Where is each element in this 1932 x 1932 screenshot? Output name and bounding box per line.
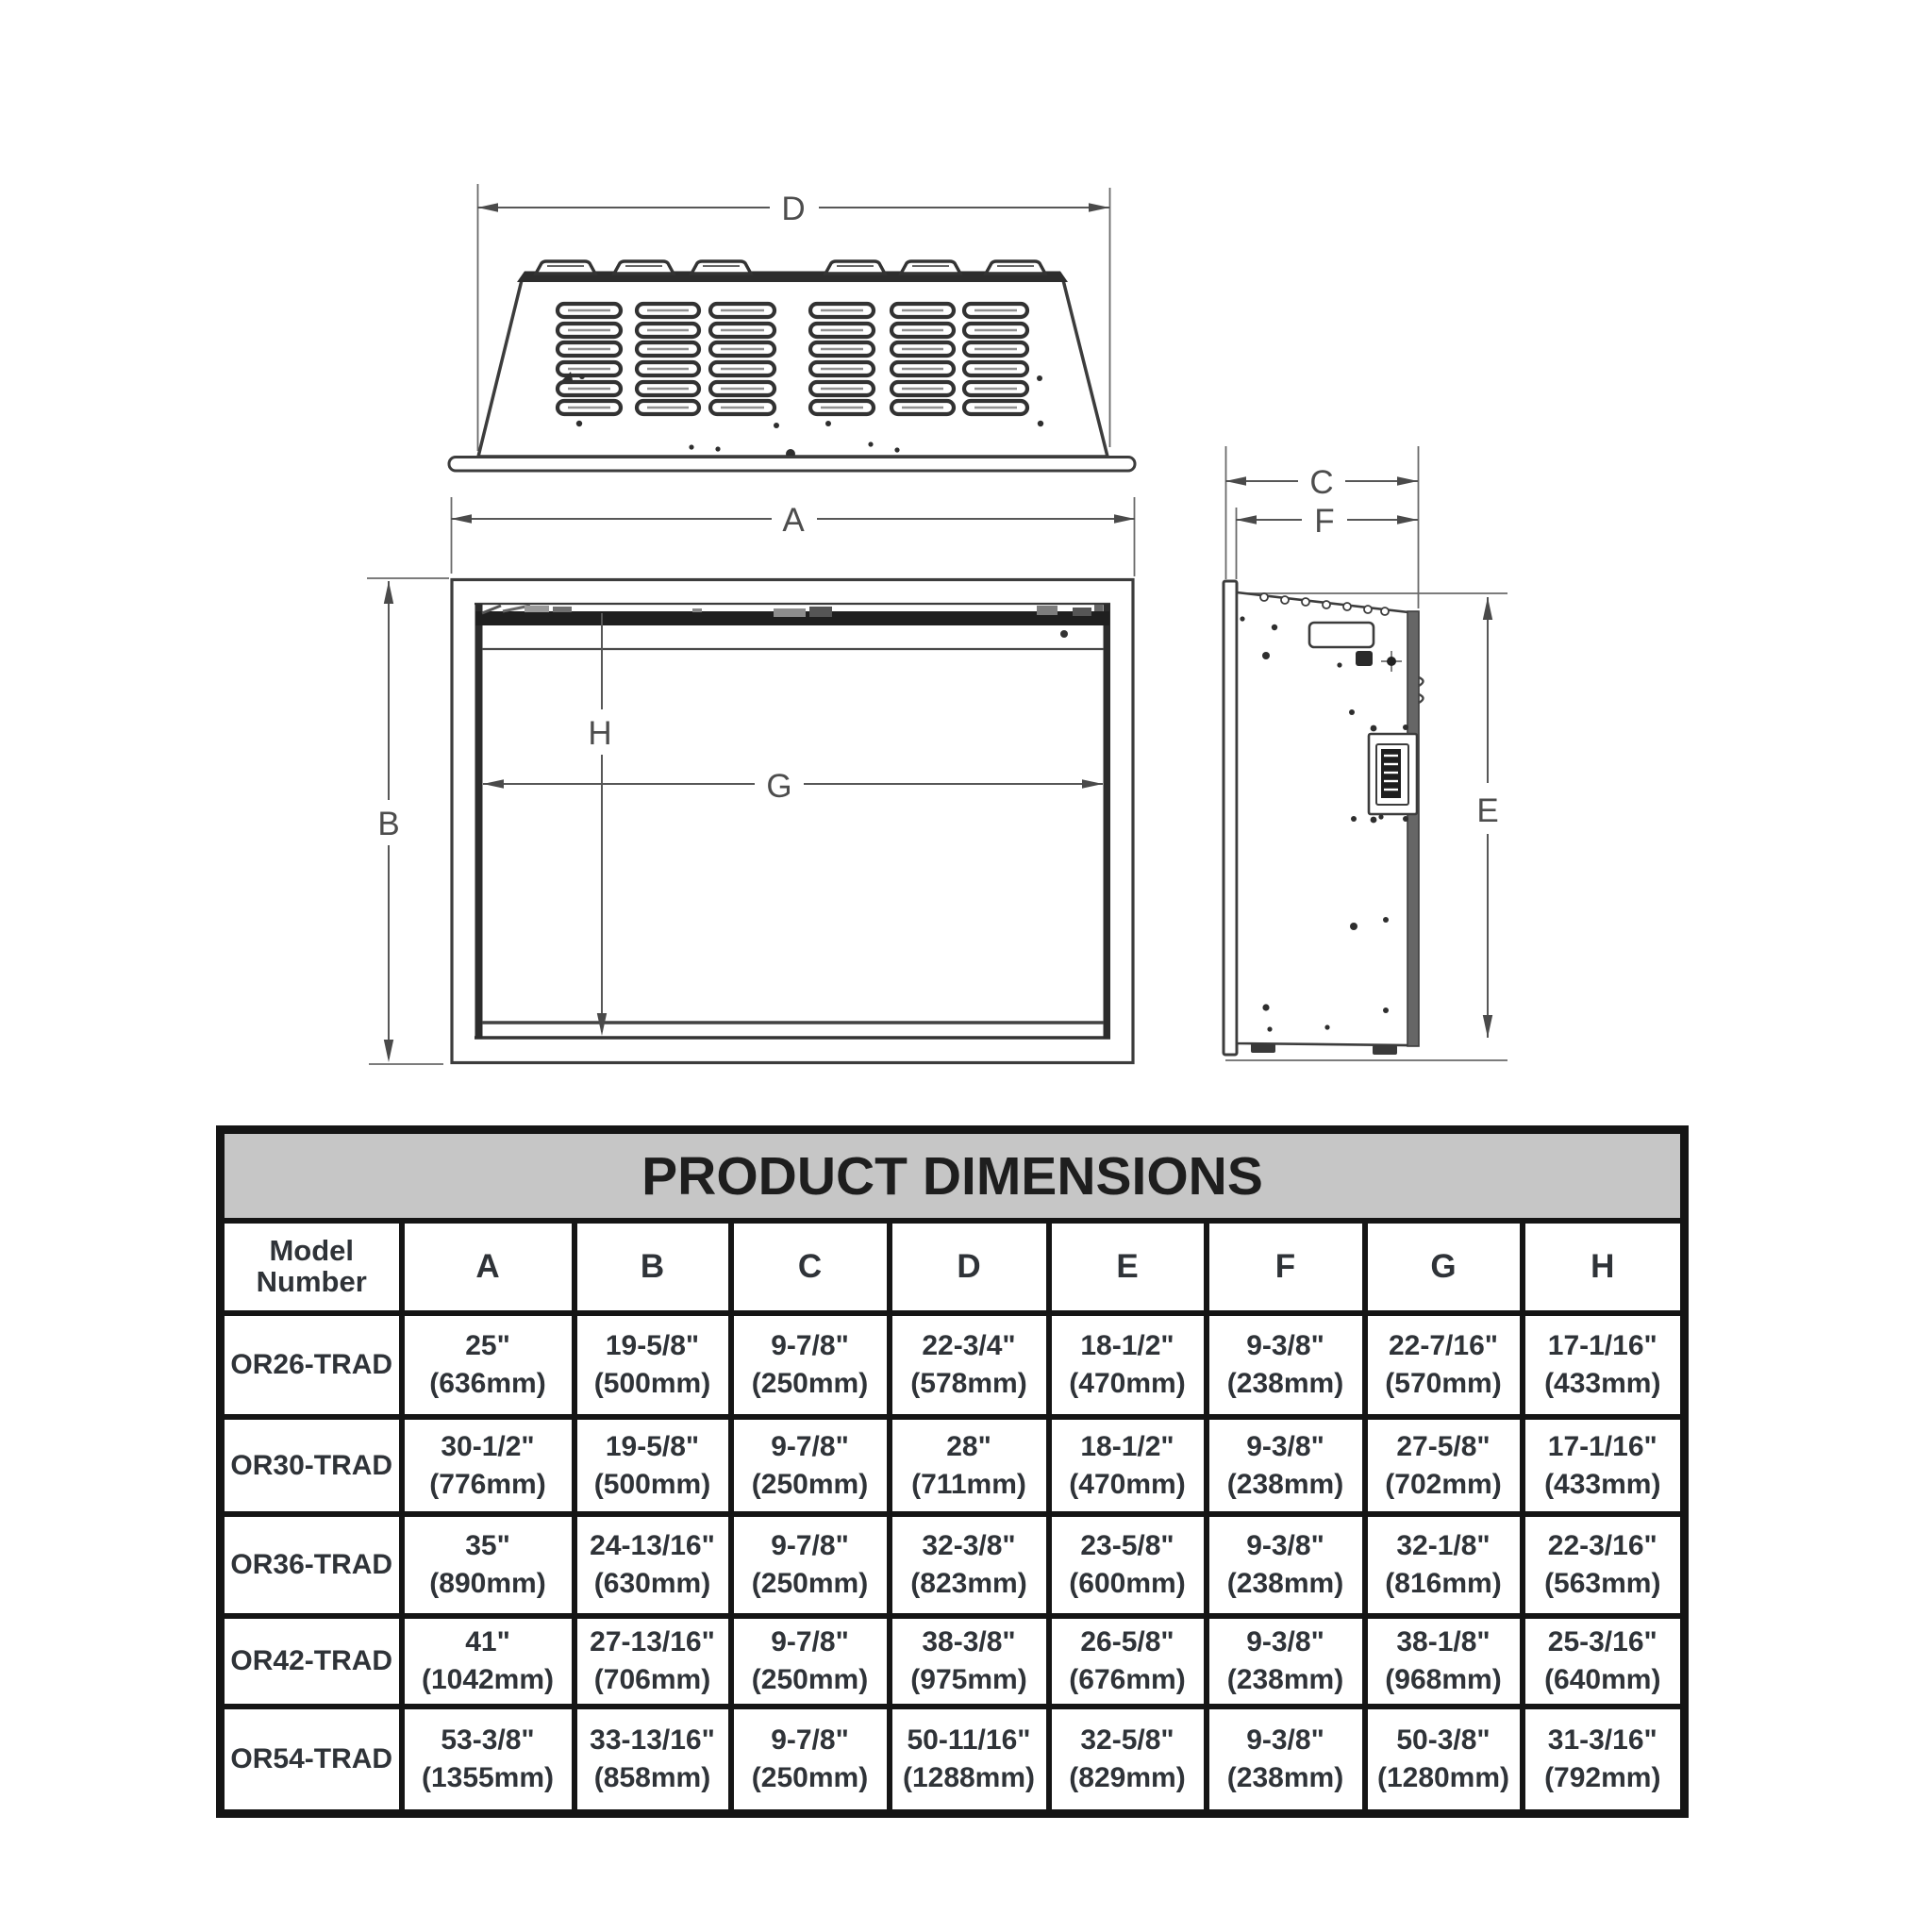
svg-text:H: H — [588, 715, 611, 752]
svg-text:F: F — [1314, 503, 1334, 540]
svg-text:B: B — [377, 806, 399, 842]
svg-text:G: G — [766, 768, 791, 805]
svg-text:C: C — [1309, 464, 1333, 501]
svg-text:D: D — [781, 191, 805, 227]
svg-text:A: A — [782, 502, 805, 539]
svg-text:E: E — [1476, 792, 1498, 829]
